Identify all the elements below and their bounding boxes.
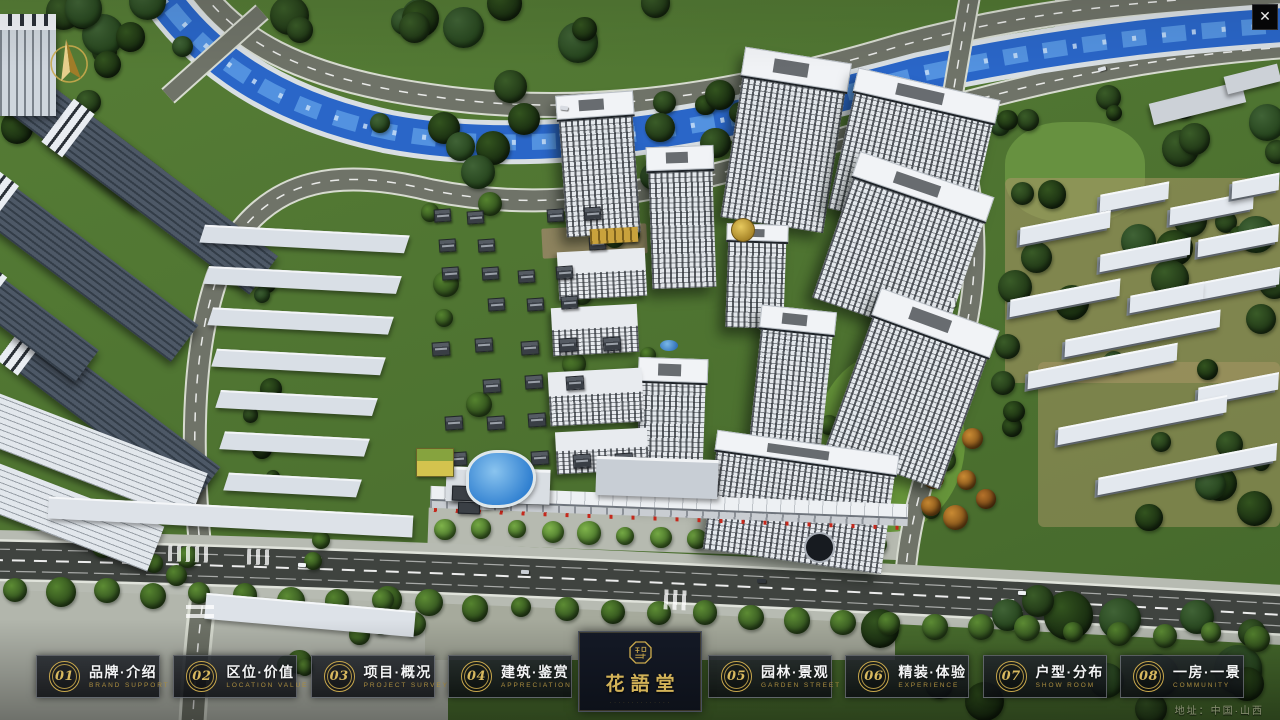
nav-item-label: 户型·分布 (1036, 665, 1104, 680)
seal-emblem-icon (627, 639, 654, 666)
nav-item-caption: SHOW ROOM (1036, 682, 1104, 689)
nav-number: 03 (330, 669, 349, 684)
nav-item-label: 园林·景观 (761, 665, 831, 680)
project-logo-panel[interactable]: 花語堂 · · · · · · · · · · · · · · (578, 631, 702, 712)
car (1018, 591, 1026, 595)
zebra-crossing (186, 602, 214, 618)
zebra-crossing (247, 549, 274, 566)
nav-item-texts: 一房·一景COMMUNITY (1173, 665, 1241, 689)
nav-number-badge: 02 (186, 661, 217, 692)
nav-item-texts: 品牌·介绍BRAND SUPPORT (89, 665, 159, 689)
logo-title: 花語堂 (605, 669, 680, 696)
nav-number: 08 (1139, 669, 1158, 684)
yellow-building (416, 448, 454, 477)
nav-item-05[interactable]: 05园林·景观GARDEN STREET (708, 655, 832, 698)
sales-presentation-screen: ✕ 01品牌·介绍BRAND SUPPORT02区位·价值LOCATION VA… (0, 0, 1280, 720)
shop-block (595, 456, 718, 499)
compass-icon (40, 34, 98, 92)
nav-item-texts: 园林·景观GARDEN STREET (761, 665, 831, 689)
landscape-features-layer (0, 0, 1280, 720)
nav-number: 06 (864, 669, 883, 684)
compass-north-icon (40, 34, 98, 92)
car (1098, 66, 1107, 72)
nav-item-texts: 户型·分布SHOW ROOM (1036, 665, 1104, 689)
nav-number: 05 (727, 669, 746, 684)
nav-item-07[interactable]: 07户型·分布SHOW ROOM (983, 655, 1107, 698)
nav-number-badge: 07 (996, 661, 1027, 692)
car (757, 579, 766, 583)
car (950, 298, 955, 307)
nav-group-left: 01品牌·介绍BRAND SUPPORT02区位·价值LOCATION VALU… (36, 655, 572, 700)
nav-item-01[interactable]: 01品牌·介绍BRAND SUPPORT (36, 655, 160, 698)
nav-item-caption: BRAND SUPPORT (89, 682, 159, 689)
gold-art-circle (731, 218, 755, 242)
nav-item-texts: 区位·价值LOCATION VALUE (226, 665, 296, 689)
nav-item-label: 一房·一景 (1173, 665, 1241, 680)
nav-item-02[interactable]: 02区位·价值LOCATION VALUE (173, 655, 297, 698)
nav-number-badge: 05 (721, 661, 752, 692)
car (560, 105, 568, 110)
nav-number-badge: 03 (324, 661, 355, 692)
nav-item-06[interactable]: 06精装·体验EXPERIENCE (845, 655, 969, 698)
nav-item-label: 建筑·鉴赏 (501, 665, 571, 680)
nav-item-caption: EXPERIENCE (898, 682, 966, 689)
nav-number-badge: 06 (858, 661, 889, 692)
nav-item-texts: 精装·体验EXPERIENCE (898, 665, 966, 689)
zebra-crossing (168, 545, 211, 562)
address-text: 地址：中国·山西 (1175, 702, 1264, 717)
nav-item-caption: LOCATION VALUE (226, 682, 296, 689)
nav-item-08[interactable]: 08一房·一景COMMUNITY (1120, 655, 1244, 698)
nav-number-badge: 01 (49, 661, 80, 692)
zebra-crossing (663, 589, 690, 610)
water-feature (660, 340, 678, 351)
nav-item-03[interactable]: 03项目·概况PROJECT SURVEY (311, 655, 435, 698)
nav-item-label: 项目·概况 (364, 665, 434, 680)
nav-number-badge: 04 (461, 661, 492, 692)
entry-plaza-circle (804, 532, 835, 563)
car (521, 570, 529, 574)
nav-item-label: 精装·体验 (898, 665, 966, 680)
nav-item-caption: APPRECIATION (501, 682, 571, 689)
nav-item-caption: COMMUNITY (1173, 682, 1241, 689)
nav-number-badge: 08 (1133, 661, 1164, 692)
nav-number: 02 (192, 669, 211, 684)
nav-item-label: 区位·价值 (226, 665, 296, 680)
nav-number: 07 (1002, 669, 1021, 684)
nav-number: 01 (55, 669, 74, 684)
nav-item-texts: 建筑·鉴赏APPRECIATION (501, 665, 571, 689)
gold-canopy (590, 227, 639, 244)
nav-number: 04 (467, 669, 486, 684)
nav-item-texts: 项目·概况PROJECT SURVEY (364, 665, 434, 689)
nav-item-04[interactable]: 04建筑·鉴赏APPRECIATION (448, 655, 572, 698)
nav-item-caption: PROJECT SURVEY (364, 682, 434, 689)
nav-item-caption: GARDEN STREET (761, 682, 831, 689)
close-button[interactable]: ✕ (1252, 4, 1278, 30)
aerial-masterplan-render (0, 0, 1280, 720)
nav-item-label: 品牌·介绍 (89, 665, 159, 680)
nav-group-right: 05园林·景观GARDEN STREET06精装·体验EXPERIENCE07户… (708, 655, 1244, 700)
car (298, 563, 306, 567)
logo-subtitle: · · · · · · · · · · · · · · (610, 700, 670, 705)
